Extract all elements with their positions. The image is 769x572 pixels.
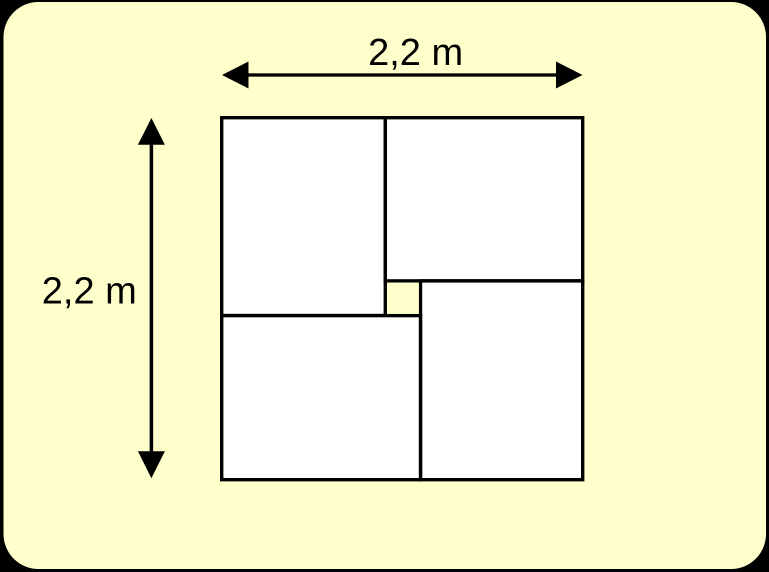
svg-text:2,2 m: 2,2 m: [42, 271, 137, 313]
svg-text:2,2 m: 2,2 m: [368, 32, 463, 74]
